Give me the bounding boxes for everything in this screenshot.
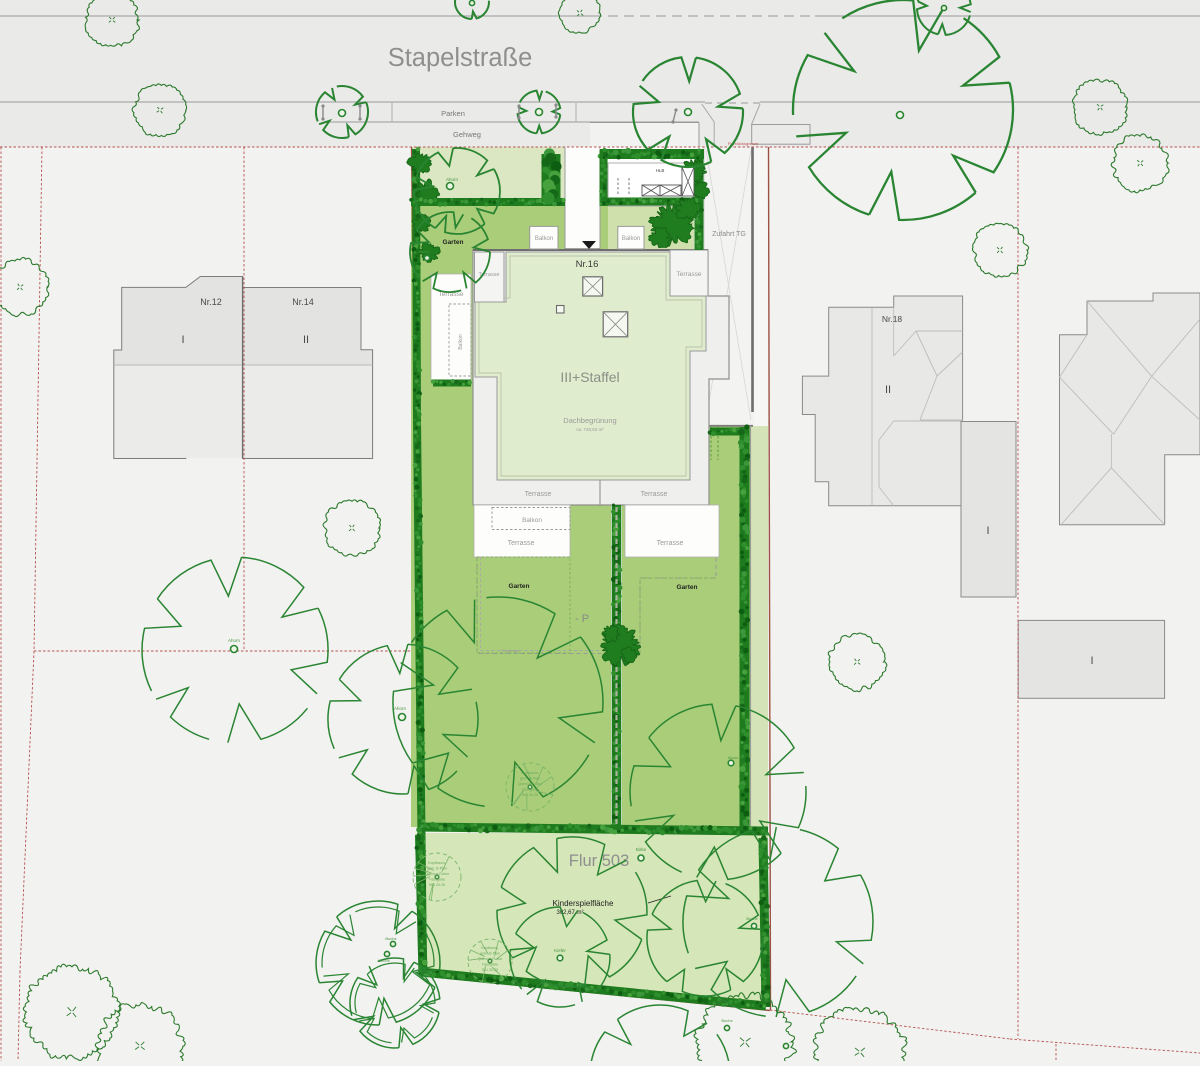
svg-text:Terrasse: Terrasse: [508, 540, 535, 547]
svg-text:Buche: Buche: [378, 958, 390, 963]
svg-text:gem. B-Plan: gem. B-Plan: [480, 951, 500, 955]
svg-text:StU 20-25: StU 20-25: [522, 793, 538, 797]
svg-text:Nr.14: Nr.14: [292, 297, 314, 307]
svg-text:Kopfbaum-: Kopfbaum-: [428, 861, 446, 865]
svg-text:302,67 m²: 302,67 m²: [556, 910, 583, 916]
svg-text:Buche: Buche: [418, 249, 430, 254]
svg-text:Parken: Parken: [441, 109, 465, 118]
svg-text:Buche: Buche: [385, 936, 397, 941]
svg-text:Kopfbaum-: Kopfbaum-: [521, 771, 539, 775]
svg-text:II: II: [303, 334, 309, 346]
svg-text:I: I: [181, 334, 184, 346]
svg-text:Nr.18: Nr.18: [882, 314, 903, 324]
svg-text:Ahorn: Ahorn: [728, 755, 739, 760]
svg-text:HLB: HLB: [656, 168, 665, 173]
svg-text:II: II: [885, 384, 891, 396]
svg-text:Terrasse: Terrasse: [677, 271, 702, 278]
svg-text:Balkon: Balkon: [535, 236, 553, 242]
svg-text:Terrasse: Terrasse: [641, 491, 668, 498]
svg-text:Garten: Garten: [443, 239, 464, 246]
svg-text:Nr.12: Nr.12: [200, 297, 222, 307]
svg-text:Garten: Garten: [677, 584, 698, 591]
svg-text:gem. B-Plan: gem. B-Plan: [520, 776, 540, 780]
svg-text:III+Staffel: III+Staffel: [560, 369, 619, 385]
svg-text:ca. 748,63 m²: ca. 748,63 m²: [576, 427, 604, 432]
svg-text:Balkon: Balkon: [522, 517, 542, 524]
svg-text:Tiefgarage: Tiefgarage: [501, 648, 521, 653]
svg-text:Ahorn: Ahorn: [394, 706, 407, 711]
svg-text:Zufahrt TG: Zufahrt TG: [712, 231, 746, 238]
svg-text:Buche: Buche: [721, 1018, 733, 1023]
svg-text:Balkon: Balkon: [458, 334, 464, 350]
svg-text:I: I: [986, 525, 989, 537]
svg-text:Nr.16: Nr.16: [576, 259, 599, 270]
svg-text:Dachbegrünung: Dachbegrünung: [563, 416, 616, 425]
svg-text:- P: - P: [575, 613, 589, 625]
svg-text:StU 20-25: StU 20-25: [482, 968, 498, 972]
svg-text:Terrasse: Terrasse: [657, 540, 684, 547]
svg-text:StU 20-25: StU 20-25: [429, 883, 445, 887]
svg-text:Birke: Birke: [636, 847, 647, 852]
svg-text:Buche: Buche: [746, 916, 758, 921]
svg-text:I: I: [1090, 655, 1093, 667]
svg-text:Gehweg: Gehweg: [453, 130, 481, 139]
svg-text:Balkon: Balkon: [622, 236, 640, 242]
svg-text:Stapelstraße: Stapelstraße: [388, 44, 533, 72]
svg-text:Terrasse: Terrasse: [525, 491, 552, 498]
svg-text:gem. B-Plan: gem. B-Plan: [427, 866, 447, 870]
svg-text:Garten: Garten: [509, 583, 530, 590]
svg-text:Kiefer: Kiefer: [554, 948, 566, 953]
svg-text:Kinderspielfläche: Kinderspielfläche: [553, 899, 614, 908]
svg-text:Kopfbaum-: Kopfbaum-: [481, 946, 499, 950]
svg-text:Ahorn: Ahorn: [446, 177, 459, 182]
svg-text:Ahorn: Ahorn: [228, 638, 241, 643]
